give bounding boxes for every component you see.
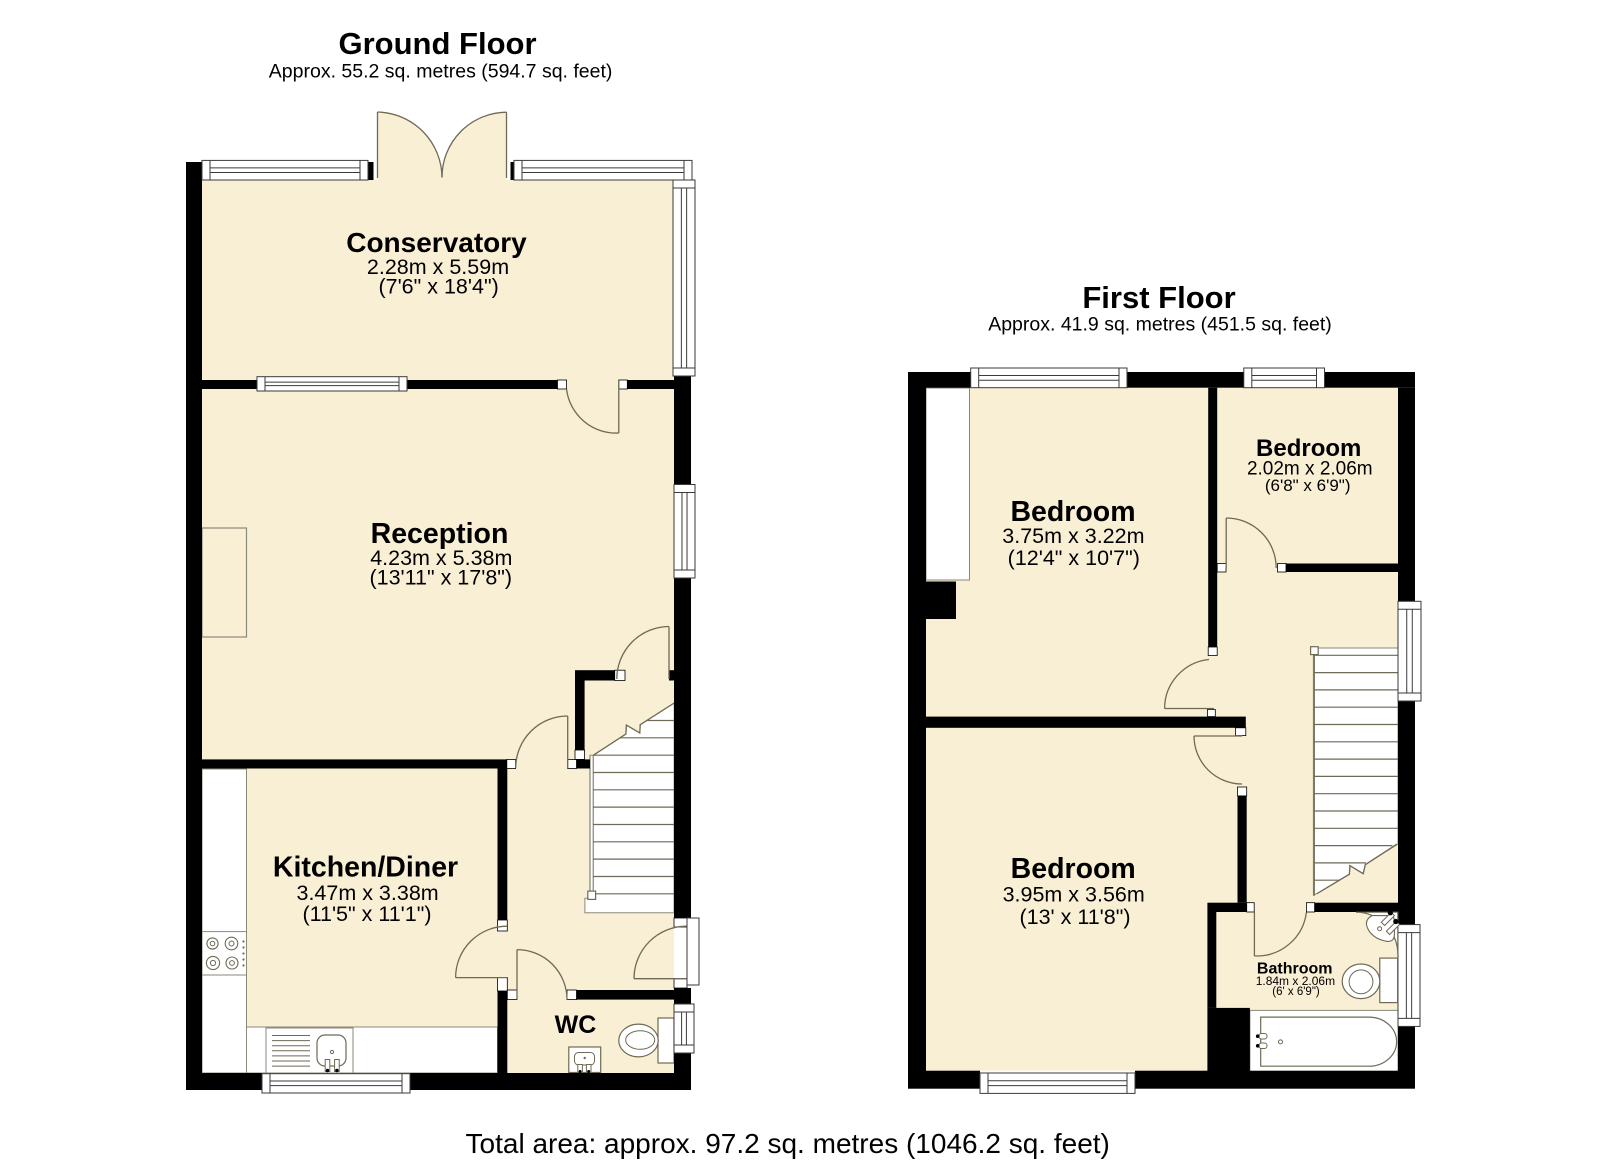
svg-text:(11'5" x 11'1"): (11'5" x 11'1") <box>302 902 431 926</box>
svg-text:Total area: approx. 97.2 sq. m: Total area: approx. 97.2 sq. metres (104… <box>466 1128 1110 1159</box>
svg-text:(7'6" x 18'4"): (7'6" x 18'4") <box>378 275 498 299</box>
svg-text:3.95m x 3.56m: 3.95m x 3.56m <box>1003 883 1145 907</box>
svg-text:(6' x 6'9"): (6' x 6'9") <box>1272 986 1320 998</box>
svg-text:First Floor: First Floor <box>1082 280 1235 315</box>
svg-text:WC: WC <box>555 1011 597 1039</box>
svg-text:Bedroom: Bedroom <box>1011 853 1136 885</box>
svg-text:(12'4" x 10'7"): (12'4" x 10'7") <box>1008 546 1140 570</box>
svg-text:(13'11" x 17'8"): (13'11" x 17'8") <box>369 566 512 590</box>
svg-text:Kitchen/Diner: Kitchen/Diner <box>273 852 458 884</box>
svg-text:Approx. 55.2 sq. metres (594.7: Approx. 55.2 sq. metres (594.7 sq. feet) <box>269 61 613 83</box>
svg-text:Approx. 41.9 sq. metres (451.5: Approx. 41.9 sq. metres (451.5 sq. feet) <box>988 314 1332 336</box>
svg-text:Ground Floor: Ground Floor <box>338 26 536 61</box>
svg-text:(6'8" x 6'9"): (6'8" x 6'9") <box>1265 476 1351 495</box>
svg-text:3.75m x 3.22m: 3.75m x 3.22m <box>1002 524 1144 548</box>
svg-text:(13' x 11'8"): (13' x 11'8") <box>1019 905 1130 929</box>
svg-text:Conservatory: Conservatory <box>346 227 527 258</box>
